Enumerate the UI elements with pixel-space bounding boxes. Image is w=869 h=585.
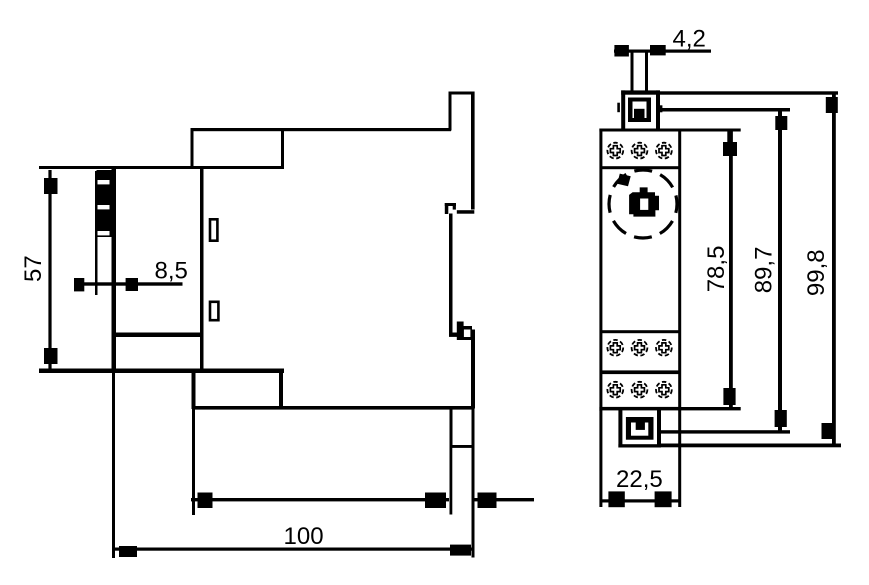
- svg-text:100: 100: [284, 523, 324, 550]
- svg-text:22,5: 22,5: [616, 466, 663, 493]
- svg-text:57: 57: [20, 255, 47, 282]
- svg-text:8,5: 8,5: [155, 258, 188, 285]
- svg-text:78,5: 78,5: [703, 246, 730, 293]
- svg-text:99,8: 99,8: [803, 249, 830, 296]
- svg-text:4,2: 4,2: [673, 26, 706, 53]
- svg-text:89,7: 89,7: [750, 247, 777, 294]
